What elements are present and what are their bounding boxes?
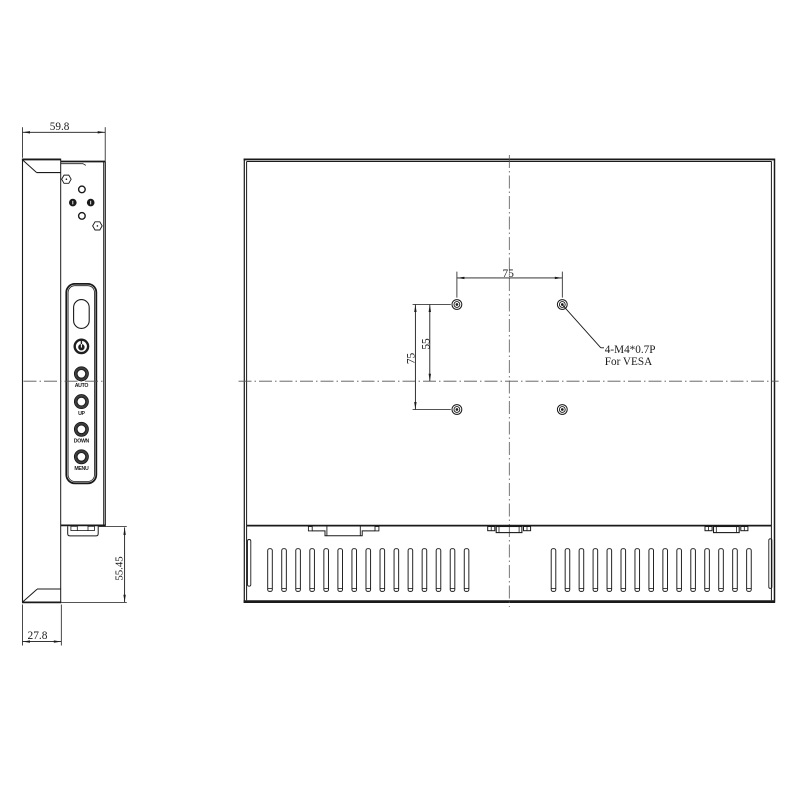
svg-text:AUTO: AUTO — [75, 383, 89, 389]
svg-text:75: 75 — [503, 268, 515, 280]
svg-text:UP: UP — [78, 411, 85, 417]
svg-text:55: 55 — [420, 338, 432, 350]
svg-text:For VESA: For VESA — [605, 356, 652, 368]
svg-text:55.45: 55.45 — [113, 556, 125, 580]
svg-text:75: 75 — [406, 353, 418, 365]
svg-text:4-M4*0.7P: 4-M4*0.7P — [605, 344, 656, 356]
svg-text:59.8: 59.8 — [50, 121, 70, 133]
svg-text:27.8: 27.8 — [28, 630, 48, 642]
svg-text:DOWN: DOWN — [74, 439, 90, 445]
svg-text:MENU: MENU — [74, 466, 89, 472]
